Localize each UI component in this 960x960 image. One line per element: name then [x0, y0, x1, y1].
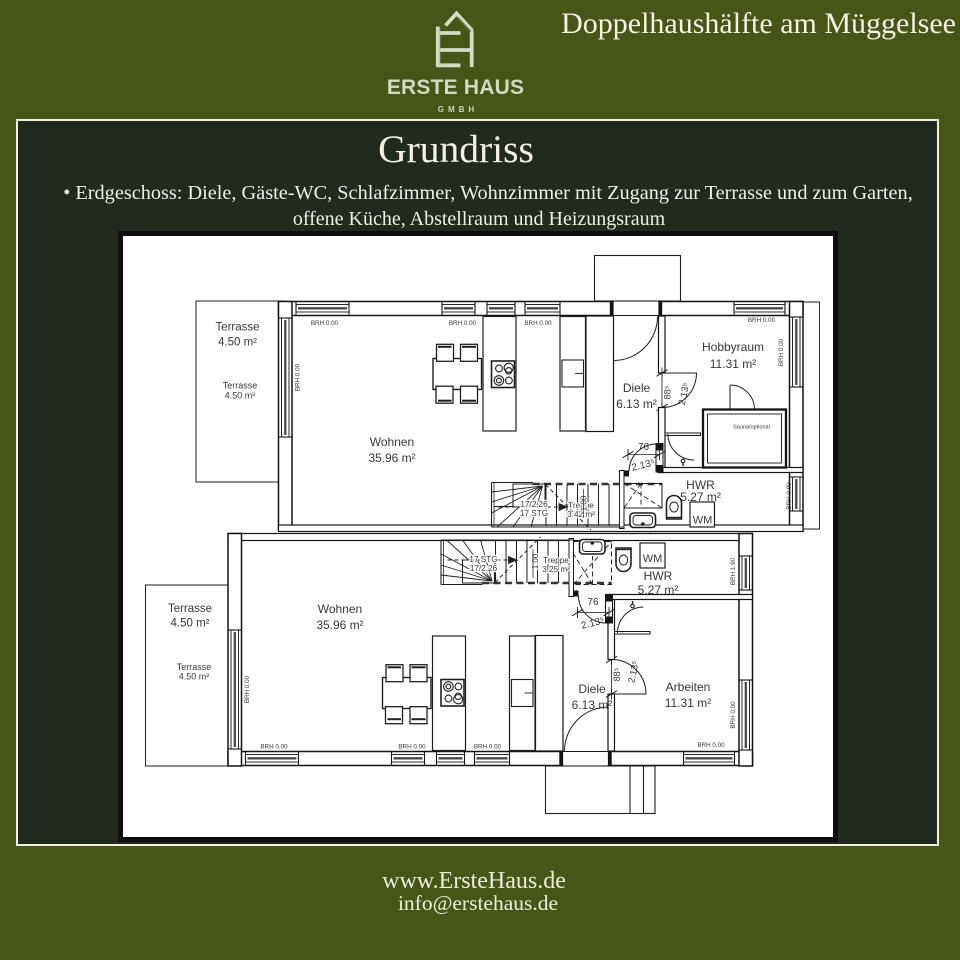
svg-text:BRH 0.00: BRH 0.00: [398, 744, 426, 751]
svg-text:6.13 m²: 6.13 m²: [572, 698, 613, 712]
svg-text:17/2,26: 17/2,26: [520, 500, 548, 509]
svg-text:11.31 m²: 11.31 m²: [665, 696, 711, 710]
svg-text:4.50 m²: 4.50 m²: [171, 618, 210, 630]
svg-text:HWR: HWR: [644, 569, 673, 583]
svg-text:BRH 0.00: BRH 0.00: [295, 363, 302, 391]
svg-text:5.27 m²: 5.27 m²: [638, 583, 679, 597]
svg-text:17/2,26: 17/2,26: [470, 564, 498, 573]
svg-text:WM: WM: [693, 515, 713, 527]
svg-text:BRH 0.00: BRH 0.00: [697, 742, 725, 749]
svg-text:17 STG: 17 STG: [469, 555, 497, 564]
svg-text:Sauna/optional: Sauna/optional: [733, 425, 770, 431]
svg-text:Treppe: Treppe: [543, 556, 569, 565]
svg-text:5.27 m²: 5.27 m²: [680, 490, 721, 504]
svg-text:BRH 0.00: BRH 0.00: [524, 320, 552, 327]
svg-text:88⁵: 88⁵: [612, 667, 622, 681]
svg-text:4.50 m²: 4.50 m²: [225, 391, 256, 401]
svg-text:1.00: 1.00: [531, 553, 540, 569]
svg-text:BRH 0.00: BRH 0.00: [730, 701, 737, 729]
svg-text:BRH 1.90: BRH 1.90: [730, 557, 737, 585]
svg-text:Diele: Diele: [623, 381, 651, 395]
svg-text:3.25 m²: 3.25 m²: [542, 565, 570, 574]
svg-text:Hobbyraum: Hobbyraum: [702, 340, 764, 354]
svg-text:Terrasse: Terrasse: [223, 381, 258, 391]
svg-text:35.96 m²: 35.96 m²: [316, 618, 363, 632]
svg-text:Terrasse: Terrasse: [215, 322, 259, 334]
svg-text:BRH 0.00: BRH 0.00: [474, 744, 502, 751]
svg-text:BRH 0.00: BRH 0.00: [778, 338, 785, 366]
svg-text:1.00: 1.00: [580, 495, 589, 511]
svg-text:WM: WM: [643, 553, 663, 565]
svg-text:BRH 0.00: BRH 0.00: [260, 744, 288, 751]
svg-text:BRH 0.90: BRH 0.90: [786, 482, 793, 510]
svg-text:Terrasse: Terrasse: [168, 603, 212, 615]
svg-text:Wohnen: Wohnen: [370, 435, 414, 449]
svg-text:88⁵: 88⁵: [663, 385, 673, 399]
svg-text:Terrasse: Terrasse: [177, 662, 212, 672]
svg-text:Diele: Diele: [578, 682, 606, 696]
svg-text:17 STG: 17 STG: [520, 509, 548, 518]
svg-text:BRH 0.00: BRH 0.00: [244, 675, 251, 703]
svg-text:Arbeiten: Arbeiten: [666, 680, 711, 694]
svg-text:4.50 m²: 4.50 m²: [179, 672, 210, 682]
svg-text:BRH 0.00: BRH 0.00: [449, 320, 477, 327]
svg-text:BRH 0.00: BRH 0.00: [748, 317, 776, 324]
svg-text:76: 76: [587, 597, 599, 608]
svg-text:Wohnen: Wohnen: [318, 602, 362, 616]
svg-text:35.96 m²: 35.96 m²: [368, 451, 415, 465]
svg-text:4.50 m²: 4.50 m²: [218, 337, 257, 349]
svg-text:BRH 0.00: BRH 0.00: [311, 320, 339, 327]
svg-text:6.13 m²: 6.13 m²: [616, 397, 657, 411]
svg-text:11.31 m²: 11.31 m²: [710, 357, 756, 371]
